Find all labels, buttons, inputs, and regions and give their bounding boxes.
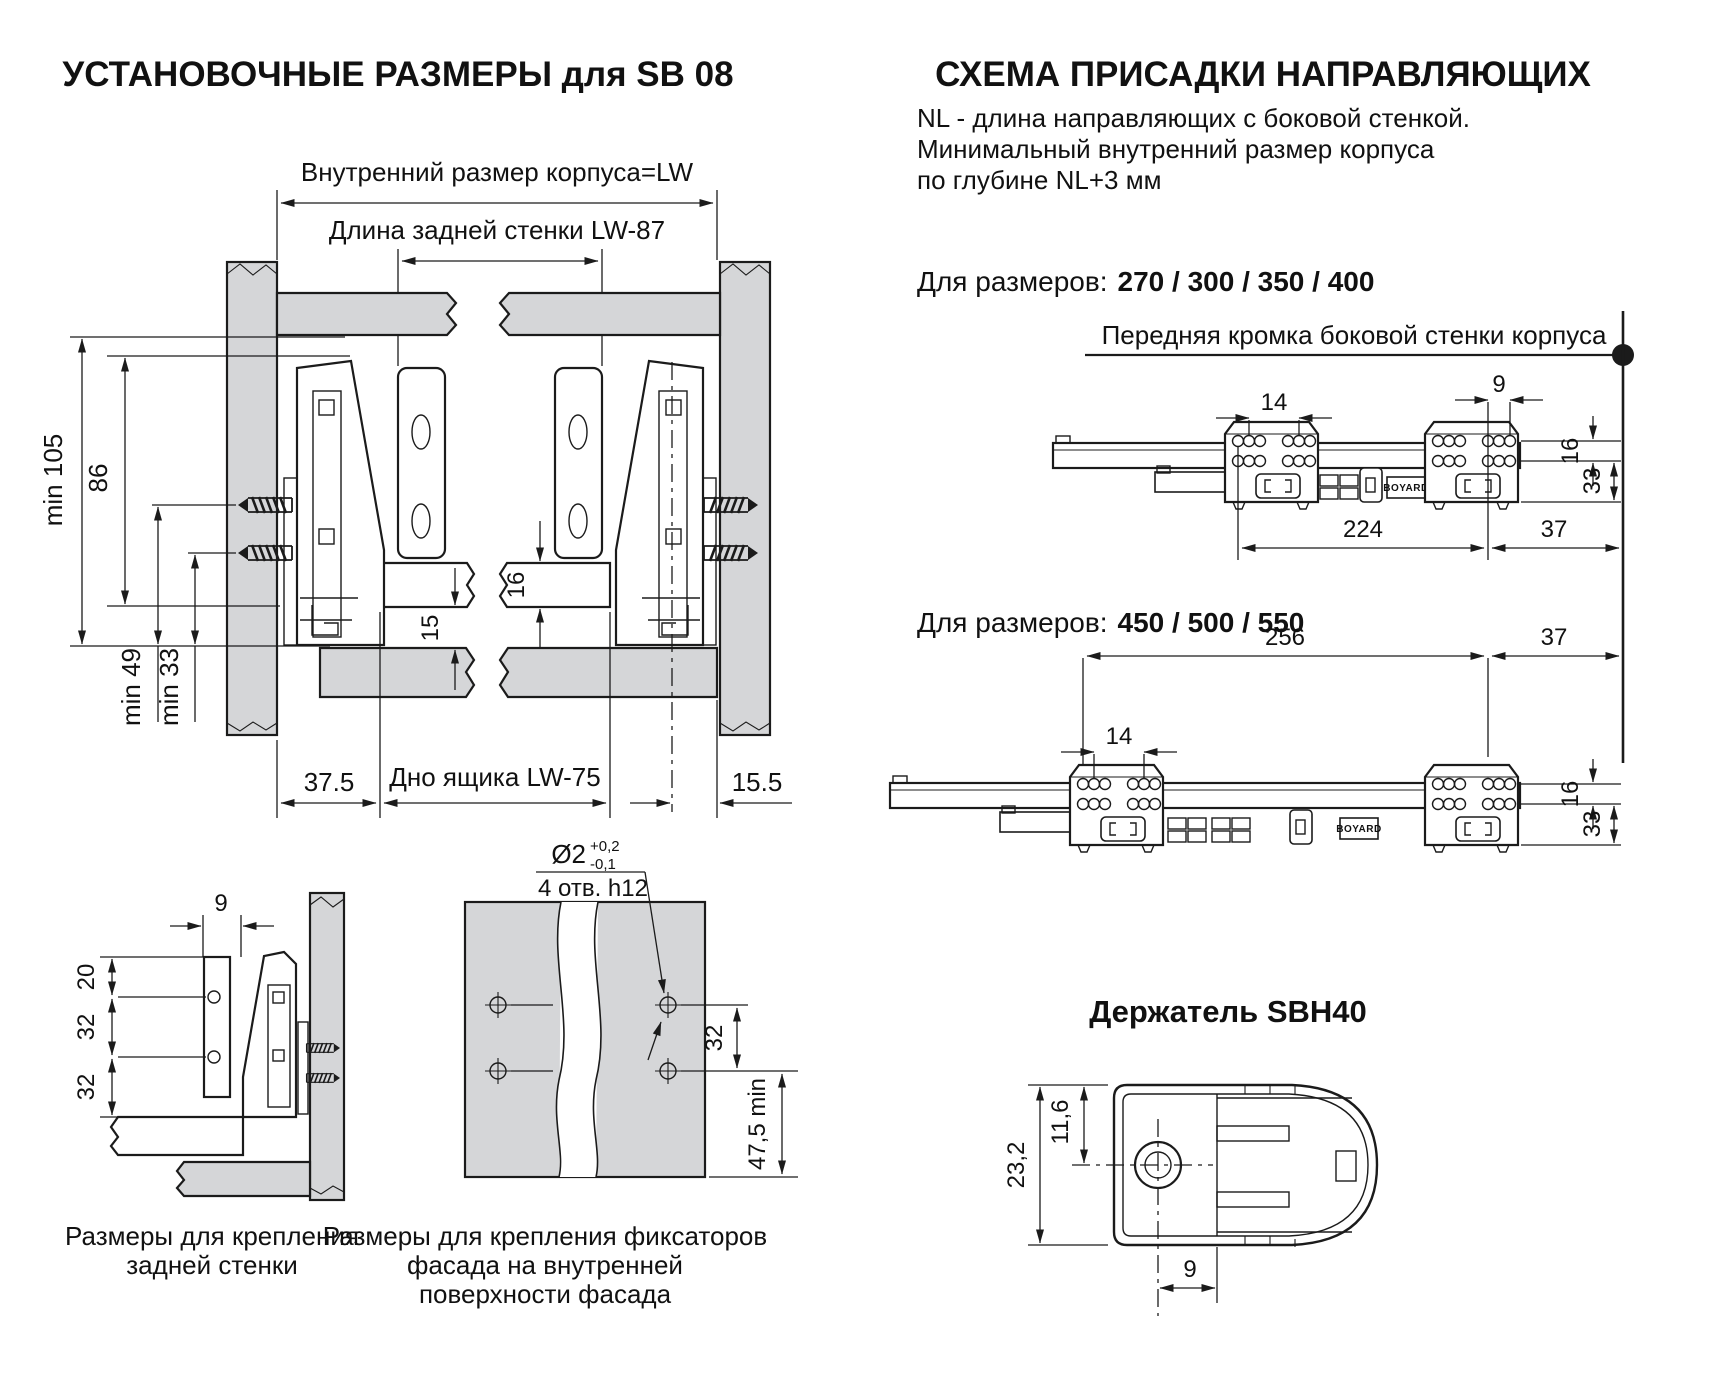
- dim-33: 33: [1579, 811, 1606, 838]
- dim-224: 224: [1343, 516, 1383, 543]
- dim-256: 256: [1265, 624, 1305, 651]
- rail-diagram-270-400: BOYARD 14 9 224 37: [1053, 371, 1621, 560]
- left-title: УСТАНОВОЧНЫЕ РАЗМЕРЫ для SB 08: [62, 55, 733, 94]
- dim-15-5: 15.5: [732, 767, 783, 797]
- back-wall-panel: [204, 957, 230, 1097]
- drawer-bottom-left: [380, 563, 474, 607]
- back-wall-length-label: Длина задней стенки LW-87: [329, 215, 665, 245]
- back-wall-fixing-diagram: 9 20 32 32 Размеры для кре: [65, 890, 359, 1280]
- dim-33: 33: [1579, 468, 1606, 495]
- brand-logo: BOYARD: [1336, 824, 1381, 835]
- mount-block-left: [1070, 765, 1163, 852]
- note-line-1: NL - длина направляющих с боковой стенко…: [917, 103, 1470, 133]
- caption-back-wall-2: задней стенки: [126, 1250, 297, 1280]
- hole-diameter-label: Ø2: [551, 839, 586, 869]
- dim-37-5: 37.5: [304, 767, 355, 797]
- back-wall-bar-left: [277, 293, 456, 335]
- sizes-line-1: Для размеров:270 / 300 / 350 / 400: [917, 266, 1374, 297]
- drawing-svg: УСТАНОВОЧНЫЕ РАЗМЕРЫ для SB 08 Внутренни…: [0, 0, 1716, 1382]
- note-line-2: Минимальный внутренний размер корпуса: [917, 134, 1435, 164]
- cabinet-bottom-right: [500, 648, 717, 697]
- inner-width-label: Внутренний размер корпуса=LW: [301, 157, 694, 187]
- dim-23-2: 23,2: [1003, 1142, 1030, 1189]
- sizes-line-2: Для размеров:450 / 500 / 550: [917, 607, 1304, 638]
- latch-mechanism: BOYARD: [1168, 810, 1382, 844]
- dim-32: 32: [73, 1014, 100, 1041]
- dim-bottom-label: Дно ящика LW-75: [389, 762, 600, 792]
- dim-37: 37: [1541, 624, 1568, 651]
- cabinet-bottom-left: [320, 648, 474, 697]
- dim-15: 15: [417, 615, 444, 642]
- mount-block-right: [1425, 765, 1518, 852]
- dim-86: 86: [83, 464, 113, 493]
- dim-14: 14: [1106, 723, 1133, 750]
- dim-11-6: 11,6: [1047, 1100, 1074, 1145]
- caption-back-wall-1: Размеры для крепления: [65, 1221, 359, 1251]
- dim-min33: min 33: [154, 648, 184, 726]
- brand-logo: BOYARD: [1383, 483, 1428, 494]
- drawer-bottom-bar: [111, 1117, 243, 1155]
- mount-block-left: [1225, 422, 1318, 509]
- rail-diagram-450-550: 256 37 B: [890, 624, 1621, 852]
- dim-min105: min 105: [38, 434, 68, 527]
- cabinet-bottom-bar: [177, 1162, 310, 1196]
- dim-37: 37: [1541, 516, 1568, 543]
- right-title: СХЕМА ПРИСАДКИ НАПРАВЛЯЮЩИХ: [935, 55, 1591, 94]
- tolerance-minus: -0,1: [590, 856, 616, 873]
- front-edge-label: Передняя кромка боковой стенки корпуса: [1102, 320, 1607, 350]
- caption-fixator-2: фасада на внутренней: [407, 1250, 683, 1280]
- profile-cross-section: [243, 952, 308, 1117]
- dim-16: 16: [503, 572, 530, 599]
- tolerance-plus: +0,2: [590, 838, 620, 855]
- caption-fixator-1: Размеры для крепления фиксаторов: [323, 1221, 767, 1251]
- dim-32: 32: [73, 1074, 100, 1101]
- facade-fixator-diagram: Ø2 +0,2 -0,1 4 отв. h12 32 47,5 min Разм…: [323, 838, 798, 1309]
- dim-9: 9: [214, 890, 227, 917]
- caption-fixator-3: поверхности фасада: [419, 1279, 672, 1309]
- dim-min49: min 49: [116, 648, 146, 726]
- dim-16: 16: [1557, 438, 1584, 465]
- dim-14: 14: [1261, 389, 1288, 416]
- holder-sbh40-diagram: Держатель SBH40 23,2 11,6 9: [1003, 994, 1377, 1316]
- dim-16: 16: [1557, 781, 1584, 808]
- latch-mechanism: BOYARD: [1320, 468, 1429, 502]
- dim-9: 9: [1492, 371, 1505, 398]
- holder-title: Держатель SBH40: [1089, 994, 1367, 1029]
- dim-47-5-min: 47,5 min: [744, 1078, 771, 1170]
- holes-count-label: 4 отв. h12: [538, 875, 648, 902]
- note-line-3: по глубине NL+3 мм: [917, 165, 1161, 195]
- cabinet-side-panel: [310, 893, 344, 1200]
- back-wall-bar-right: [500, 293, 720, 335]
- dim-9: 9: [1183, 1256, 1196, 1283]
- main-install-diagram: Внутренний размер корпуса=LW Длина задне…: [38, 157, 792, 818]
- mount-block-right: [1425, 422, 1518, 509]
- dim-32: 32: [701, 1025, 728, 1052]
- technical-drawing-page: УСТАНОВОЧНЫЕ РАЗМЕРЫ для SB 08 Внутренни…: [0, 0, 1716, 1382]
- dim-20: 20: [73, 964, 100, 991]
